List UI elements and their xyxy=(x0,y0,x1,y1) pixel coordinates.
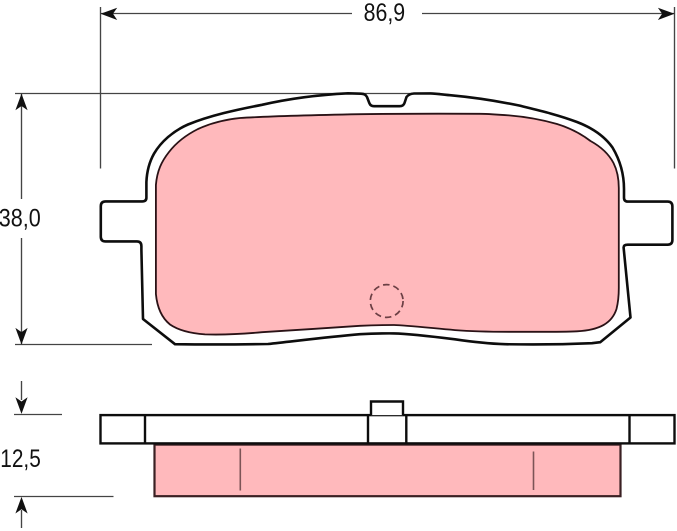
svg-text:38,0: 38,0 xyxy=(0,205,41,233)
svg-text:86,9: 86,9 xyxy=(364,0,406,27)
svg-text:12,5: 12,5 xyxy=(0,445,41,473)
